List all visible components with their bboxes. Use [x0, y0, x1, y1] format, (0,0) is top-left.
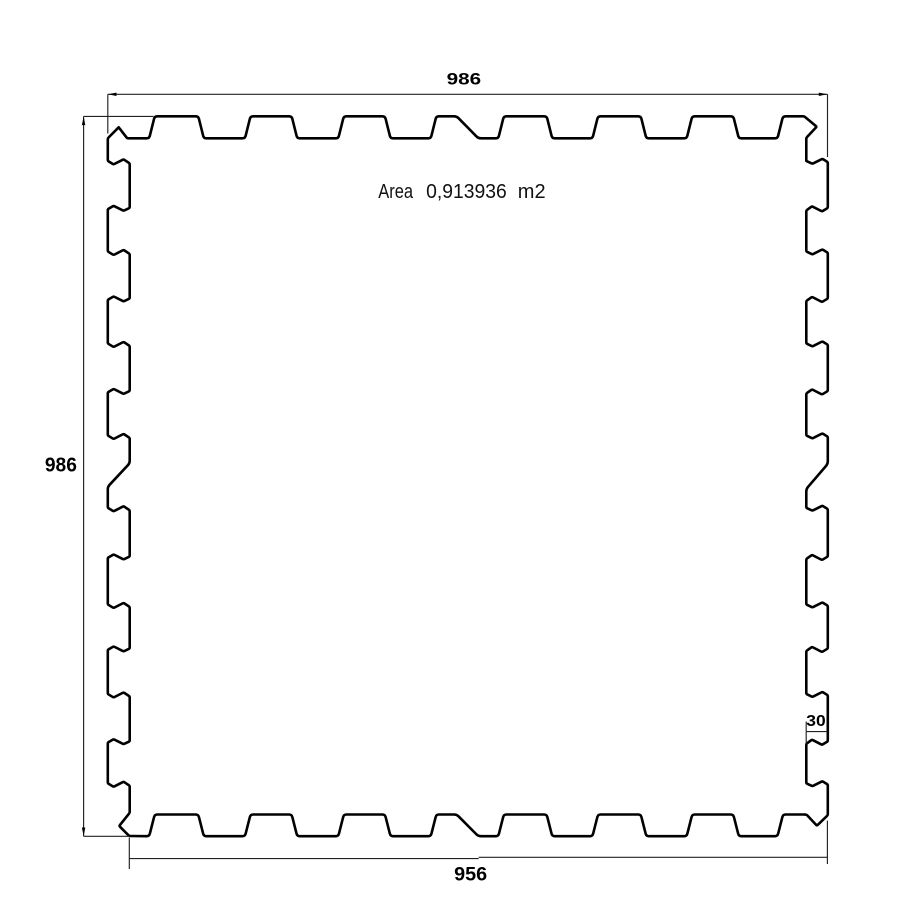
svg-text:986: 986	[447, 70, 482, 89]
svg-text:0,913936: 0,913936	[426, 181, 507, 203]
svg-text:30: 30	[806, 713, 826, 730]
svg-text:Area: Area	[378, 181, 414, 203]
svg-text:m2: m2	[518, 181, 546, 203]
svg-text:956: 956	[454, 864, 487, 886]
svg-text:986: 986	[45, 455, 77, 477]
